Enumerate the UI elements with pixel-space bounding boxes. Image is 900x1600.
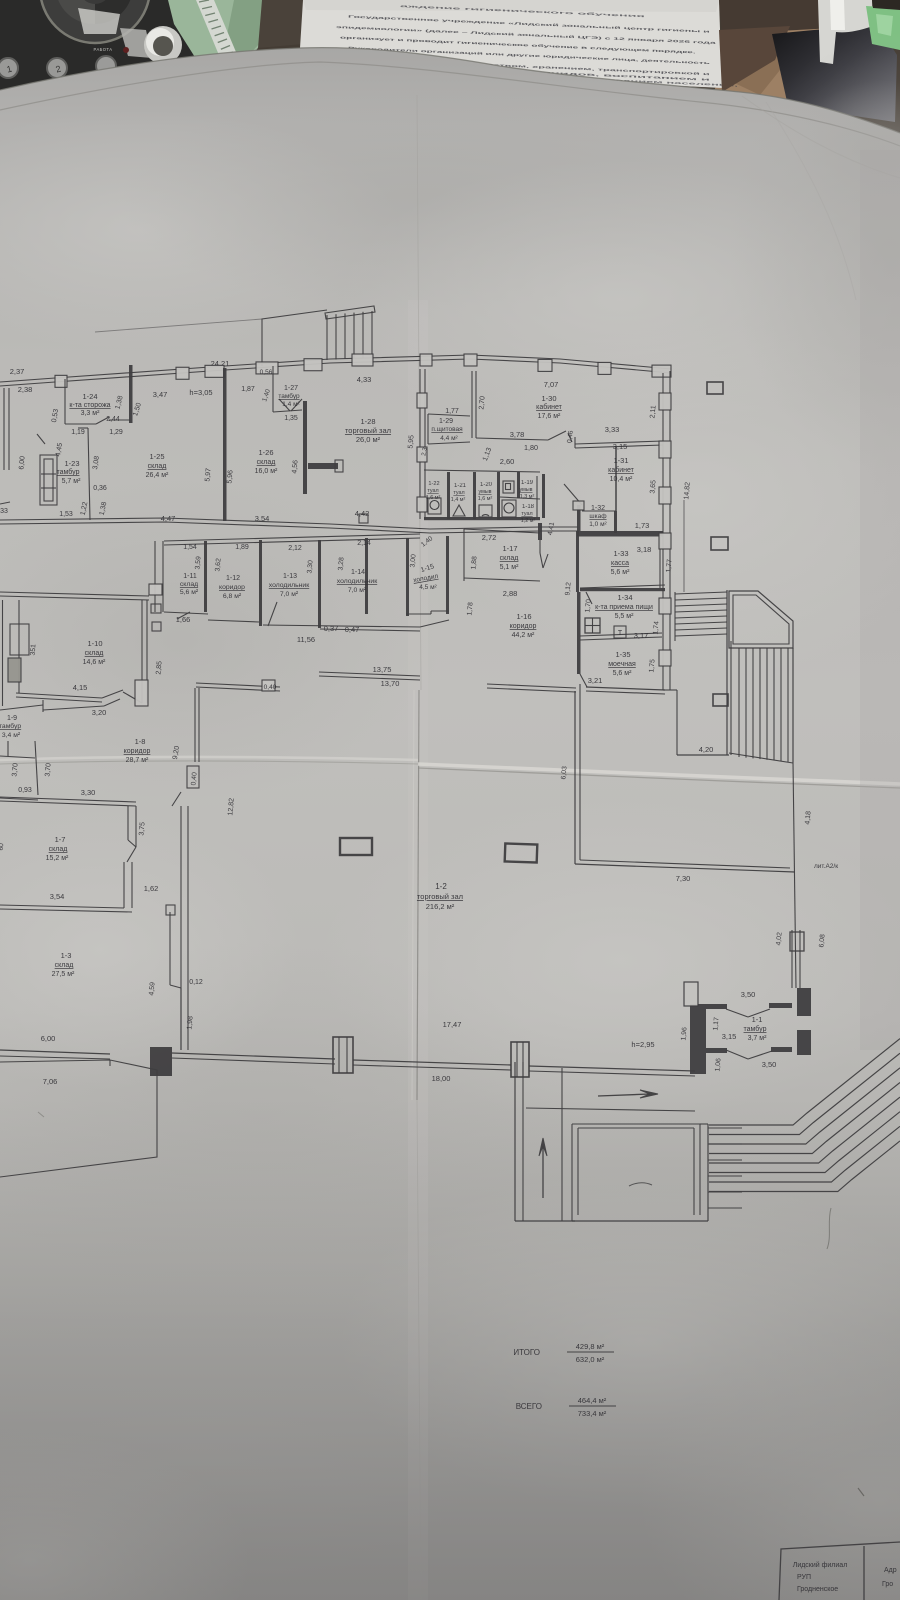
svg-text:2,38: 2,38 [18, 385, 33, 394]
svg-text:кабинет: кабинет [536, 403, 563, 411]
svg-text:0,40: 0,40 [264, 684, 277, 691]
svg-text:33: 33 [0, 508, 8, 515]
svg-text:1-8: 1-8 [135, 737, 146, 746]
svg-text:холодильник: холодильник [269, 582, 309, 589]
svg-text:16,0 м²: 16,0 м² [255, 468, 278, 475]
svg-text:1-10: 1-10 [87, 639, 102, 648]
svg-text:11,56: 11,56 [297, 635, 315, 644]
svg-text:1,2 м²: 1,2 м² [521, 518, 536, 524]
svg-text:0,37: 0,37 [324, 624, 339, 633]
svg-text:1-12: 1-12 [226, 575, 240, 582]
svg-text:4,59: 4,59 [148, 982, 156, 996]
svg-text:5,95: 5,95 [407, 435, 415, 449]
svg-text:429,8 м²: 429,8 м² [576, 1342, 605, 1351]
svg-text:26,4 м²: 26,4 м² [146, 472, 169, 479]
svg-text:1-27: 1-27 [284, 385, 298, 392]
svg-text:1-23: 1-23 [64, 459, 79, 468]
svg-text:1,88: 1,88 [470, 556, 478, 570]
svg-text:1-35: 1-35 [615, 650, 630, 659]
svg-text:1-7: 1-7 [55, 835, 66, 844]
svg-text:Т: Т [618, 630, 623, 637]
svg-text:1-16: 1-16 [516, 612, 531, 621]
svg-text:632,0 м²: 632,0 м² [576, 1355, 605, 1364]
svg-text:3,70: 3,70 [11, 763, 19, 777]
svg-text:склад: склад [500, 555, 519, 562]
svg-text:h=3,05: h=3,05 [189, 388, 212, 397]
svg-text:216,2 м²: 216,2 м² [426, 902, 455, 911]
svg-text:к-та приема пищи: к-та приема пищи [595, 604, 653, 611]
svg-text:5,1 м²: 5,1 м² [500, 564, 519, 571]
svg-text:4,56: 4,56 [291, 460, 299, 474]
svg-text:3,50: 3,50 [762, 1060, 777, 1069]
svg-text:Лидский филиал: Лидский филиал [793, 1561, 848, 1569]
svg-text:1-14: 1-14 [351, 569, 365, 576]
svg-text:4,4 м²: 4,4 м² [440, 435, 458, 442]
svg-text:склад: склад [55, 962, 74, 969]
svg-text:1-20: 1-20 [480, 482, 493, 488]
svg-text:туал: туал [427, 488, 438, 494]
svg-text:17,6 м²: 17,6 м² [538, 413, 561, 420]
svg-text:1,77: 1,77 [445, 408, 459, 415]
svg-text:44,2 м²: 44,2 м² [512, 632, 535, 639]
svg-text:туал: туал [453, 490, 464, 496]
svg-text:склад: склад [257, 459, 276, 466]
svg-text:6,8 м²: 6,8 м² [223, 593, 242, 600]
svg-text:0,93: 0,93 [18, 787, 32, 794]
svg-text:6,08: 6,08 [818, 934, 826, 948]
svg-text:2,72: 2,72 [482, 533, 497, 542]
svg-text:3,28: 3,28 [337, 557, 345, 571]
svg-text:умыв: умыв [519, 487, 532, 493]
svg-text:3,18: 3,18 [637, 545, 652, 554]
svg-text:7,0 м²: 7,0 м² [280, 591, 299, 598]
svg-text:4,5 м²: 4,5 м² [419, 584, 437, 591]
svg-text:0,56: 0,56 [260, 369, 273, 376]
svg-text:к-та сторожа: к-та сторожа [69, 402, 110, 409]
svg-text:7,07: 7,07 [544, 380, 559, 389]
svg-text:Гродненское: Гродненское [797, 1586, 838, 1593]
svg-text:3,62: 3,62 [214, 558, 222, 572]
svg-text:3,47: 3,47 [153, 390, 168, 399]
svg-text:1-32: 1-32 [591, 505, 605, 512]
svg-text:1,78: 1,78 [466, 602, 474, 616]
svg-text:склад: склад [85, 650, 104, 657]
svg-text:h=2,95: h=2,95 [631, 1040, 654, 1049]
svg-text:3,54: 3,54 [50, 892, 65, 901]
svg-text:тамбур: тамбур [57, 468, 80, 476]
svg-text:5,6 м²: 5,6 м² [180, 589, 199, 596]
svg-text:торговый зал: торговый зал [417, 892, 463, 901]
svg-text:1-11: 1-11 [183, 573, 197, 580]
svg-text:коридор: коридор [219, 584, 245, 591]
svg-text:2,11: 2,11 [649, 405, 657, 419]
svg-text:3,65: 3,65 [649, 480, 657, 494]
svg-text:1,0 м²: 1,0 м² [589, 521, 607, 528]
svg-text:1,80: 1,80 [524, 443, 538, 452]
svg-text:1-34: 1-34 [617, 593, 632, 602]
svg-text:1,4 м²: 1,4 м² [451, 497, 466, 503]
svg-text:1-2: 1-2 [435, 882, 447, 891]
svg-text:18,00: 18,00 [432, 1074, 451, 1083]
svg-text:15,2 м²: 15,2 м² [46, 855, 69, 862]
svg-text:1,75: 1,75 [648, 659, 656, 673]
svg-text:3,75: 3,75 [138, 822, 146, 836]
svg-text:3,7 м²: 3,7 м² [748, 1035, 767, 1042]
svg-text:2,70: 2,70 [478, 396, 486, 410]
svg-text:5,6 м²: 5,6 м² [611, 569, 630, 576]
svg-text:0,12: 0,12 [189, 979, 203, 986]
svg-text:торговый зал: торговый зал [345, 426, 391, 435]
svg-text:3,70: 3,70 [44, 763, 52, 777]
svg-text:1-29: 1-29 [439, 418, 453, 425]
svg-text:коридор: коридор [124, 748, 151, 755]
svg-text:1-25: 1-25 [149, 452, 164, 461]
svg-text:5,7 м²: 5,7 м² [62, 478, 81, 485]
svg-text:тамбур: тамбур [0, 722, 21, 730]
svg-text:3,3 м²: 3,3 м² [81, 410, 100, 417]
svg-text:1,89: 1,89 [235, 544, 249, 551]
svg-text:1-30: 1-30 [541, 394, 556, 403]
svg-text:7,0 м²: 7,0 м² [348, 587, 367, 594]
svg-text:0,36: 0,36 [93, 485, 107, 492]
svg-text:3,15: 3,15 [613, 442, 628, 451]
svg-text:1,87: 1,87 [241, 386, 255, 393]
svg-text:1,17: 1,17 [712, 1017, 720, 1031]
svg-text:27,5 м²: 27,5 м² [52, 971, 75, 978]
svg-text:2,14: 2,14 [357, 540, 371, 547]
svg-text:1,66: 1,66 [176, 615, 191, 624]
svg-text:ВСЕГО: ВСЕГО [516, 1402, 542, 1411]
svg-text:холодильник: холодильник [337, 578, 377, 585]
svg-text:1,4 м²: 1,4 м² [282, 401, 300, 408]
svg-text:2,37: 2,37 [10, 367, 25, 376]
svg-text:склад: склад [49, 846, 68, 853]
svg-text:3,00: 3,00 [409, 554, 417, 568]
svg-text:2,60: 2,60 [500, 457, 515, 466]
svg-text:п.щитовая: п.щитовая [431, 426, 463, 433]
svg-text:1-13: 1-13 [283, 573, 297, 580]
svg-text:3,59: 3,59 [194, 556, 202, 570]
svg-text:5,5 м²: 5,5 м² [615, 613, 634, 620]
svg-text:коридор: коридор [510, 623, 537, 630]
svg-text:1,54: 1,54 [183, 544, 197, 551]
svg-text:1-17: 1-17 [502, 544, 517, 553]
svg-text:13,75: 13,75 [373, 665, 392, 674]
svg-text:5,97: 5,97 [204, 468, 212, 482]
svg-text:1-24: 1-24 [82, 392, 97, 401]
svg-text:1,35: 1,35 [284, 415, 298, 422]
svg-text:Гро: Гро [882, 1581, 893, 1588]
svg-text:РАБОТА: РАБОТА [94, 47, 113, 52]
svg-text:1,62: 1,62 [144, 884, 159, 893]
svg-text:3,78: 3,78 [510, 430, 525, 439]
svg-text:4,33: 4,33 [357, 375, 372, 384]
svg-text:1,96: 1,96 [680, 1027, 688, 1041]
svg-text:касса: касса [611, 560, 629, 567]
svg-text:Адр: Адр [884, 1567, 897, 1574]
svg-text:склад: склад [180, 581, 198, 588]
svg-text:9,12: 9,12 [564, 582, 572, 596]
svg-text:1-28: 1-28 [360, 417, 375, 426]
svg-text:3,15: 3,15 [722, 1032, 737, 1041]
svg-text:5,96: 5,96 [226, 470, 234, 484]
svg-text:2,12: 2,12 [288, 545, 302, 552]
svg-text:1-31: 1-31 [613, 456, 628, 465]
svg-text:26,0 м²: 26,0 м² [356, 435, 381, 444]
svg-text:4,15: 4,15 [73, 683, 88, 692]
svg-text:6,03: 6,03 [560, 766, 568, 780]
svg-text:464,4 м²: 464,4 м² [578, 1396, 607, 1405]
svg-text:3,50: 3,50 [741, 990, 756, 999]
svg-text:1,6 м²: 1,6 м² [478, 496, 493, 502]
svg-text:1,19: 1,19 [71, 429, 85, 436]
svg-text:7,30: 7,30 [676, 874, 691, 883]
svg-text:тамбур: тамбур [278, 392, 300, 400]
svg-text:1-9: 1-9 [7, 715, 17, 722]
svg-text:склад: склад [148, 463, 167, 470]
svg-text:моечная: моечная [608, 661, 636, 668]
svg-text:РУП: РУП [797, 1574, 811, 1581]
svg-text:1-19: 1-19 [521, 480, 534, 486]
svg-text:1-21: 1-21 [454, 483, 467, 489]
svg-text:28,7 м²: 28,7 м² [126, 757, 149, 764]
svg-text:13,70: 13,70 [381, 679, 400, 688]
svg-text:1-26: 1-26 [258, 448, 273, 457]
svg-text:10,4 м²: 10,4 м² [610, 476, 633, 483]
svg-text:14,6 м²: 14,6 м² [83, 659, 106, 666]
svg-text:6,00: 6,00 [41, 1034, 56, 1043]
svg-text:1-22: 1-22 [428, 481, 439, 487]
svg-text:1,6 м²: 1,6 м² [426, 495, 441, 501]
svg-text:0,40: 0,40 [190, 772, 198, 786]
svg-text:туал: туал [521, 511, 532, 517]
svg-text:5,6 м²: 5,6 м² [613, 670, 632, 677]
svg-text:733,4 м²: 733,4 м² [578, 1409, 607, 1418]
svg-text:2,88: 2,88 [503, 589, 518, 598]
svg-text:шкаф: шкаф [589, 513, 607, 520]
svg-text:6,00: 6,00 [18, 456, 26, 470]
svg-text:1,74: 1,74 [652, 621, 660, 635]
svg-text:7,06: 7,06 [43, 1077, 58, 1086]
svg-text:1,73: 1,73 [635, 521, 650, 530]
svg-text:1,06: 1,06 [714, 1058, 722, 1072]
svg-text:4,02: 4,02 [775, 932, 783, 946]
svg-text:3,21: 3,21 [588, 676, 603, 685]
svg-text:1,53: 1,53 [59, 511, 73, 518]
svg-text:2,44: 2,44 [106, 416, 120, 423]
svg-text:тамбур: тамбур [744, 1025, 767, 1033]
svg-text:3,4 м²: 3,4 м² [2, 732, 21, 739]
svg-text:17,47: 17,47 [443, 1020, 462, 1029]
svg-text:1,98: 1,98 [186, 1016, 194, 1030]
svg-text:3,30: 3,30 [81, 788, 96, 797]
svg-text:кабинет: кабинет [608, 466, 635, 474]
svg-text:ИТОГО: ИТОГО [513, 1348, 540, 1357]
svg-text:1,3 м²: 1,3 м² [520, 494, 535, 500]
svg-text:3,30: 3,30 [306, 560, 314, 574]
svg-text:351: 351 [30, 644, 38, 656]
svg-text:умыв: умыв [478, 489, 491, 495]
svg-text:1-3: 1-3 [61, 951, 72, 960]
svg-text:3,20: 3,20 [92, 708, 107, 717]
svg-text:60: 60 [0, 843, 5, 851]
svg-text:2,85: 2,85 [155, 661, 163, 675]
svg-text:3,33: 3,33 [605, 425, 620, 434]
svg-text:1,29: 1,29 [109, 429, 123, 436]
svg-text:лит.А2/к: лит.А2/к [814, 863, 838, 870]
svg-text:1-1: 1-1 [752, 1015, 763, 1024]
svg-text:1,70: 1,70 [584, 599, 592, 613]
svg-text:4,18: 4,18 [804, 811, 812, 825]
svg-text:1-18: 1-18 [522, 504, 535, 510]
svg-text:4,20: 4,20 [699, 745, 714, 754]
svg-text:1-33: 1-33 [613, 549, 628, 558]
svg-text:3,17: 3,17 [634, 631, 649, 640]
